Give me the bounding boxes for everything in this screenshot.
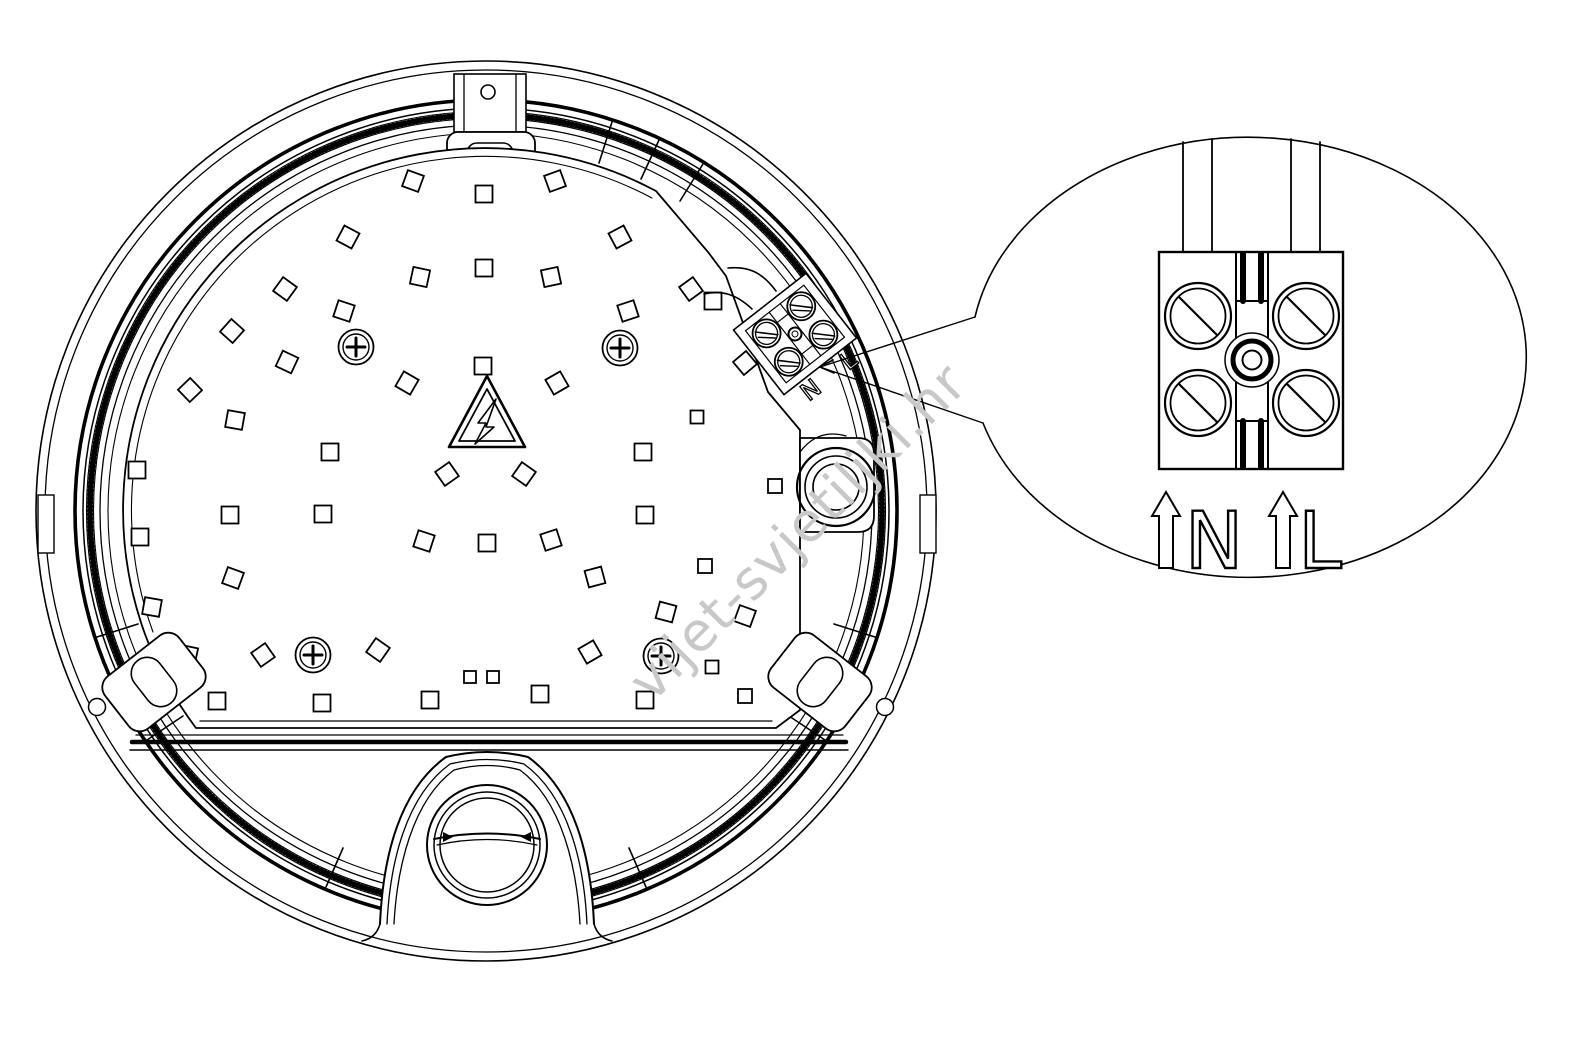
led-square (476, 260, 493, 277)
sensor-window (427, 785, 547, 905)
led-square (464, 671, 476, 683)
led-square (585, 567, 606, 588)
led-square (635, 444, 652, 461)
technical-drawing-canvas: N L (0, 0, 1586, 1054)
screw (296, 638, 331, 673)
led-square (475, 358, 492, 375)
rim-hole-left (89, 699, 106, 716)
right-rim-notch (920, 495, 936, 553)
top-tab (454, 74, 526, 132)
detail-label-l: L (1298, 497, 1342, 587)
screw (339, 330, 374, 365)
rim-hole-right (877, 699, 894, 716)
detail-label-n: N (1185, 497, 1243, 587)
led-square (476, 186, 493, 203)
led-square (410, 267, 430, 287)
led-square (315, 506, 332, 523)
led-square (222, 507, 239, 524)
led-square (209, 693, 226, 710)
led-square (541, 267, 561, 287)
screw (603, 331, 638, 366)
led-square (322, 444, 339, 461)
led-square (225, 410, 245, 430)
led-square (129, 462, 146, 479)
led-square (479, 535, 496, 552)
led-square (637, 507, 654, 524)
detail-terminal-block (1159, 252, 1343, 469)
led-square (532, 686, 549, 703)
led-square (314, 695, 331, 712)
led-square (698, 559, 712, 573)
led-square (705, 293, 722, 310)
led-square (422, 692, 439, 709)
led-square (738, 689, 752, 703)
left-rim-notch (38, 495, 54, 553)
led-square (487, 671, 499, 683)
led-square (132, 529, 149, 546)
led-square (142, 597, 162, 617)
led-square (768, 479, 782, 493)
led-square (691, 411, 704, 424)
